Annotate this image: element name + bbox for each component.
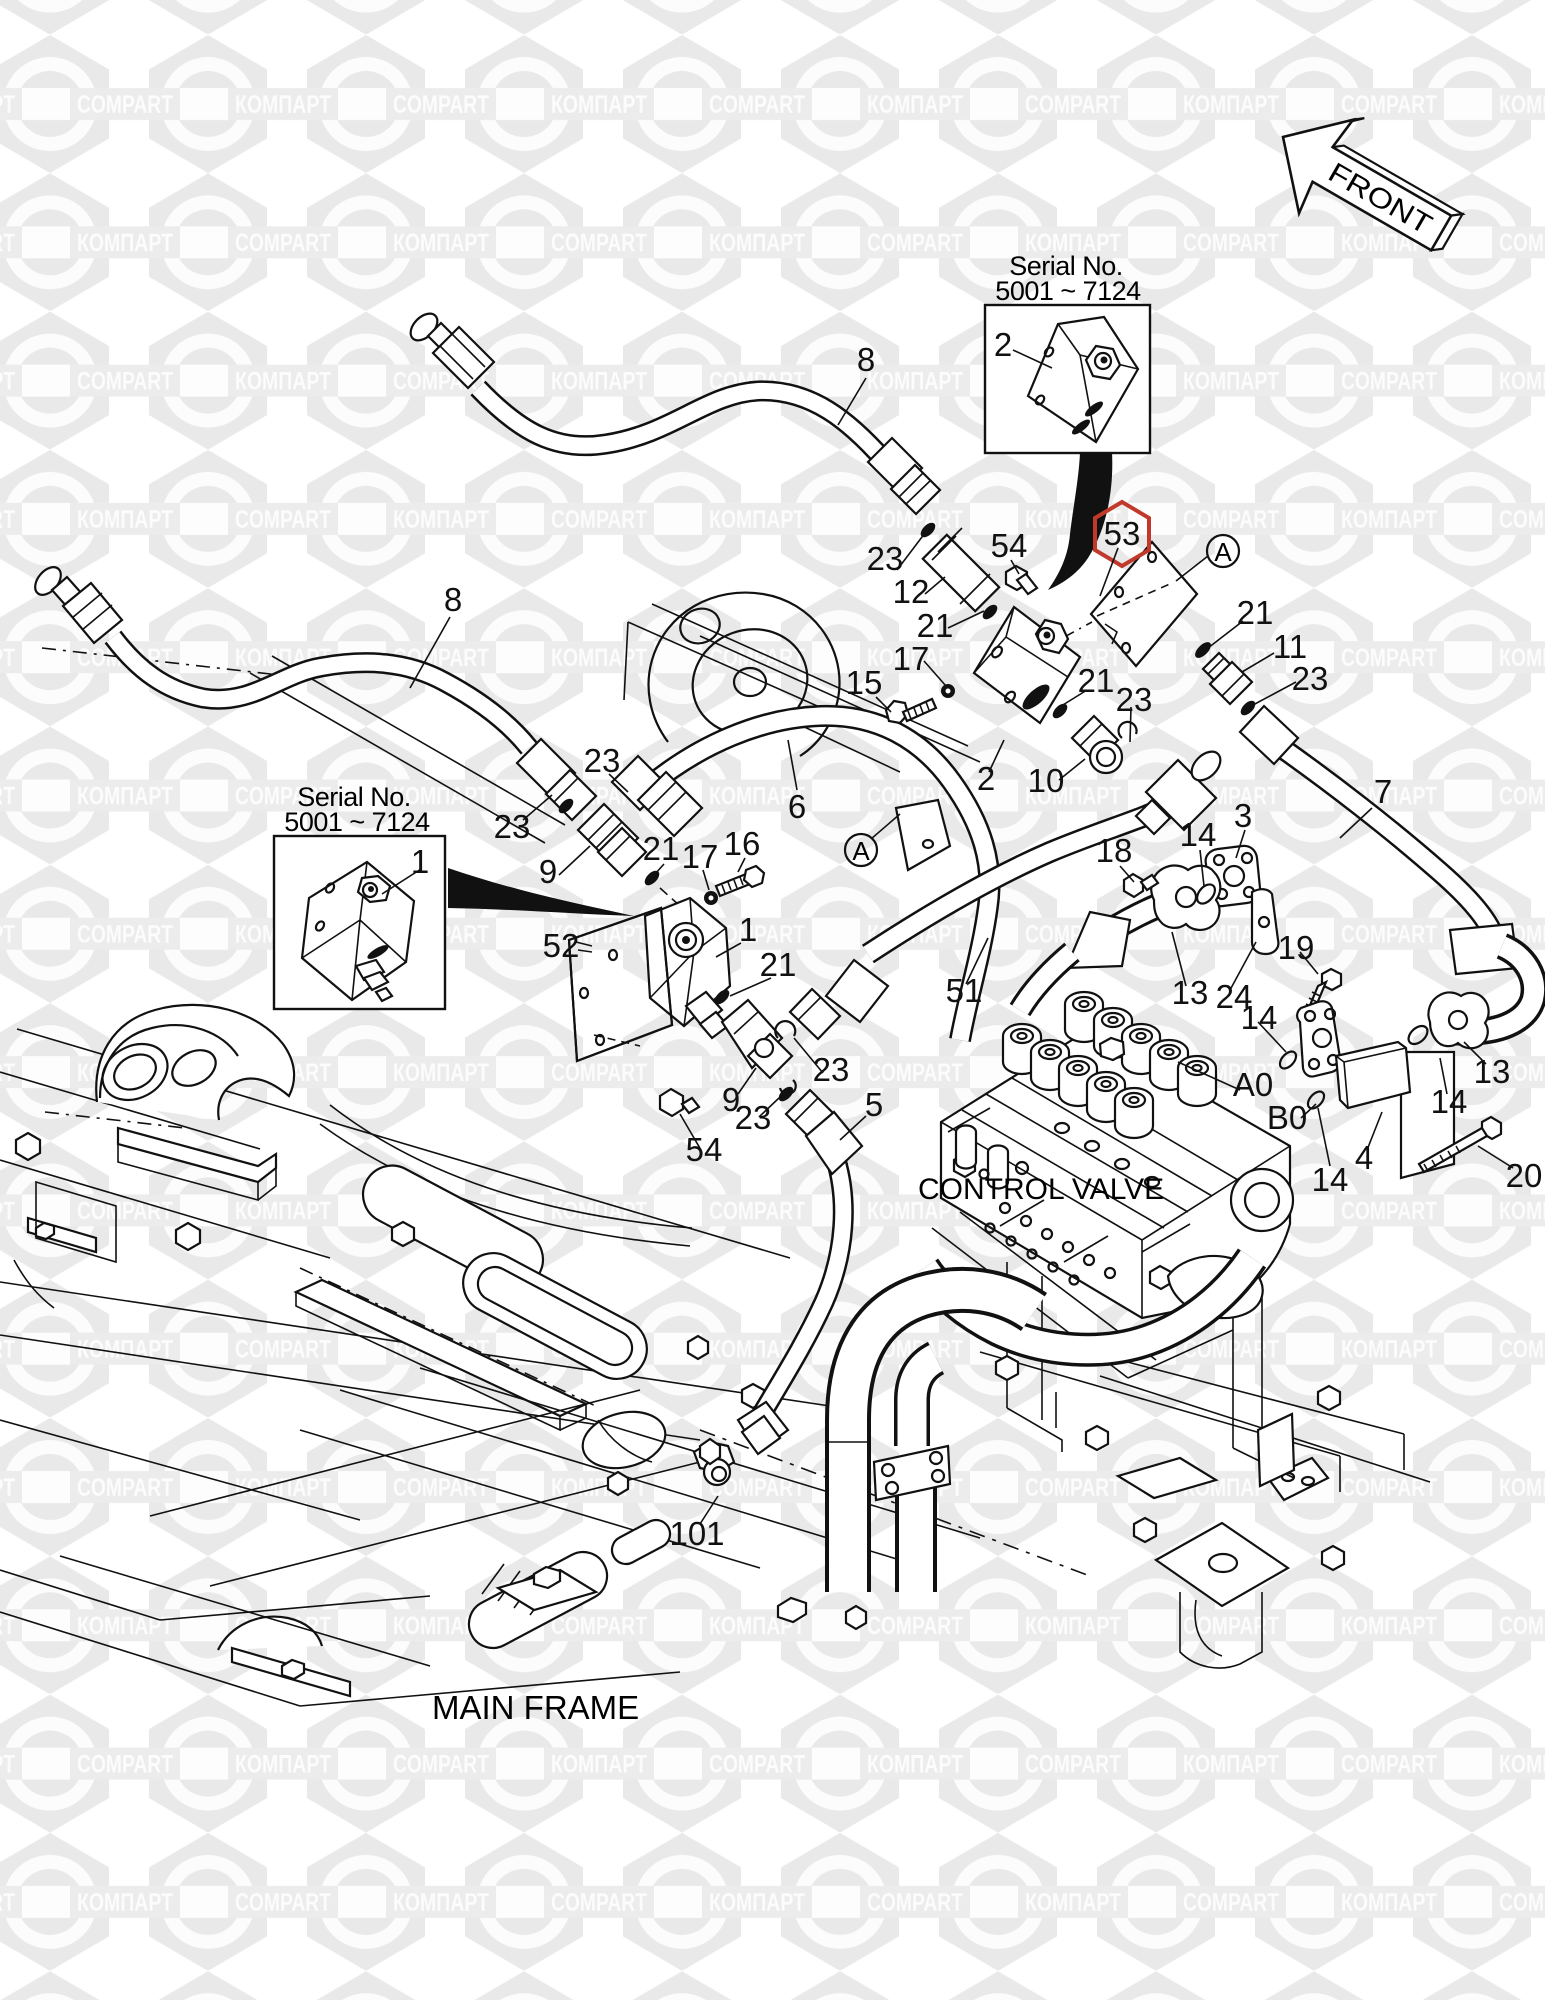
- svg-text:4: 4: [1355, 1139, 1373, 1176]
- svg-text:18: 18: [1096, 832, 1133, 869]
- svg-text:51: 51: [946, 972, 983, 1009]
- svg-text:52: 52: [543, 927, 580, 964]
- svg-text:21: 21: [917, 607, 954, 644]
- svg-text:10: 10: [1028, 762, 1065, 799]
- svg-text:17: 17: [893, 640, 930, 677]
- svg-text:21: 21: [643, 830, 680, 867]
- svg-text:23: 23: [584, 742, 621, 779]
- svg-text:21: 21: [760, 946, 797, 983]
- svg-text:16: 16: [724, 825, 761, 862]
- svg-text:1: 1: [739, 911, 757, 948]
- svg-text:2: 2: [977, 760, 995, 797]
- svg-text:B0: B0: [1267, 1099, 1307, 1136]
- svg-text:5001 ~ 7124: 5001 ~ 7124: [284, 807, 430, 837]
- svg-text:54: 54: [991, 527, 1028, 564]
- svg-text:14: 14: [1180, 816, 1217, 853]
- svg-text:14: 14: [1431, 1083, 1468, 1120]
- svg-text:2: 2: [994, 326, 1012, 363]
- svg-text:A: A: [852, 836, 870, 866]
- svg-text:8: 8: [857, 341, 875, 378]
- svg-text:53: 53: [1104, 515, 1141, 552]
- svg-text:13: 13: [1172, 974, 1209, 1011]
- svg-text:3: 3: [1234, 797, 1252, 834]
- svg-text:54: 54: [686, 1131, 723, 1168]
- svg-text:A: A: [1214, 537, 1232, 567]
- svg-text:23: 23: [494, 808, 531, 845]
- svg-text:20: 20: [1506, 1157, 1543, 1194]
- svg-text:17: 17: [682, 838, 719, 875]
- svg-text:5001 ~ 7124: 5001 ~ 7124: [995, 276, 1141, 306]
- svg-text:8: 8: [444, 581, 462, 618]
- svg-text:CONTROL VALVE: CONTROL VALVE: [918, 1173, 1164, 1206]
- svg-text:9: 9: [539, 853, 557, 890]
- svg-text:23: 23: [1116, 681, 1153, 718]
- svg-text:5: 5: [865, 1086, 883, 1123]
- svg-text:1: 1: [411, 843, 429, 880]
- svg-text:12: 12: [893, 573, 930, 610]
- svg-text:7: 7: [1374, 773, 1392, 810]
- svg-text:21: 21: [1237, 594, 1274, 631]
- svg-text:6: 6: [788, 788, 806, 825]
- svg-text:15: 15: [846, 664, 883, 701]
- svg-text:23: 23: [813, 1051, 850, 1088]
- svg-text:23: 23: [867, 540, 904, 577]
- svg-text:21: 21: [1078, 662, 1115, 699]
- svg-text:23: 23: [735, 1099, 772, 1136]
- svg-text:19: 19: [1278, 929, 1315, 966]
- svg-text:13: 13: [1474, 1053, 1511, 1090]
- svg-text:23: 23: [1292, 660, 1329, 697]
- svg-text:14: 14: [1312, 1161, 1349, 1198]
- svg-text:14: 14: [1241, 999, 1278, 1036]
- svg-text:A0: A0: [1233, 1066, 1273, 1103]
- svg-text:101: 101: [669, 1515, 724, 1552]
- svg-text:MAIN FRAME: MAIN FRAME: [432, 1689, 639, 1726]
